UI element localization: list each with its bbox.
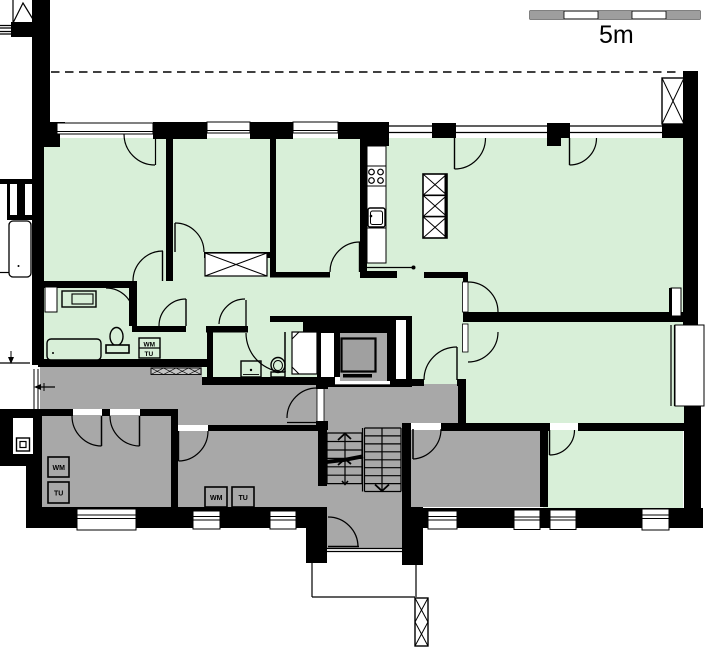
svg-text:WM: WM	[210, 495, 223, 502]
svg-text:WM: WM	[53, 465, 66, 472]
svg-text:TU: TU	[145, 351, 154, 358]
svg-text:TU: TU	[54, 491, 63, 498]
svg-text:WM: WM	[144, 342, 156, 349]
svg-text:TU: TU	[239, 495, 248, 502]
svg-text:5m: 5m	[599, 21, 634, 49]
